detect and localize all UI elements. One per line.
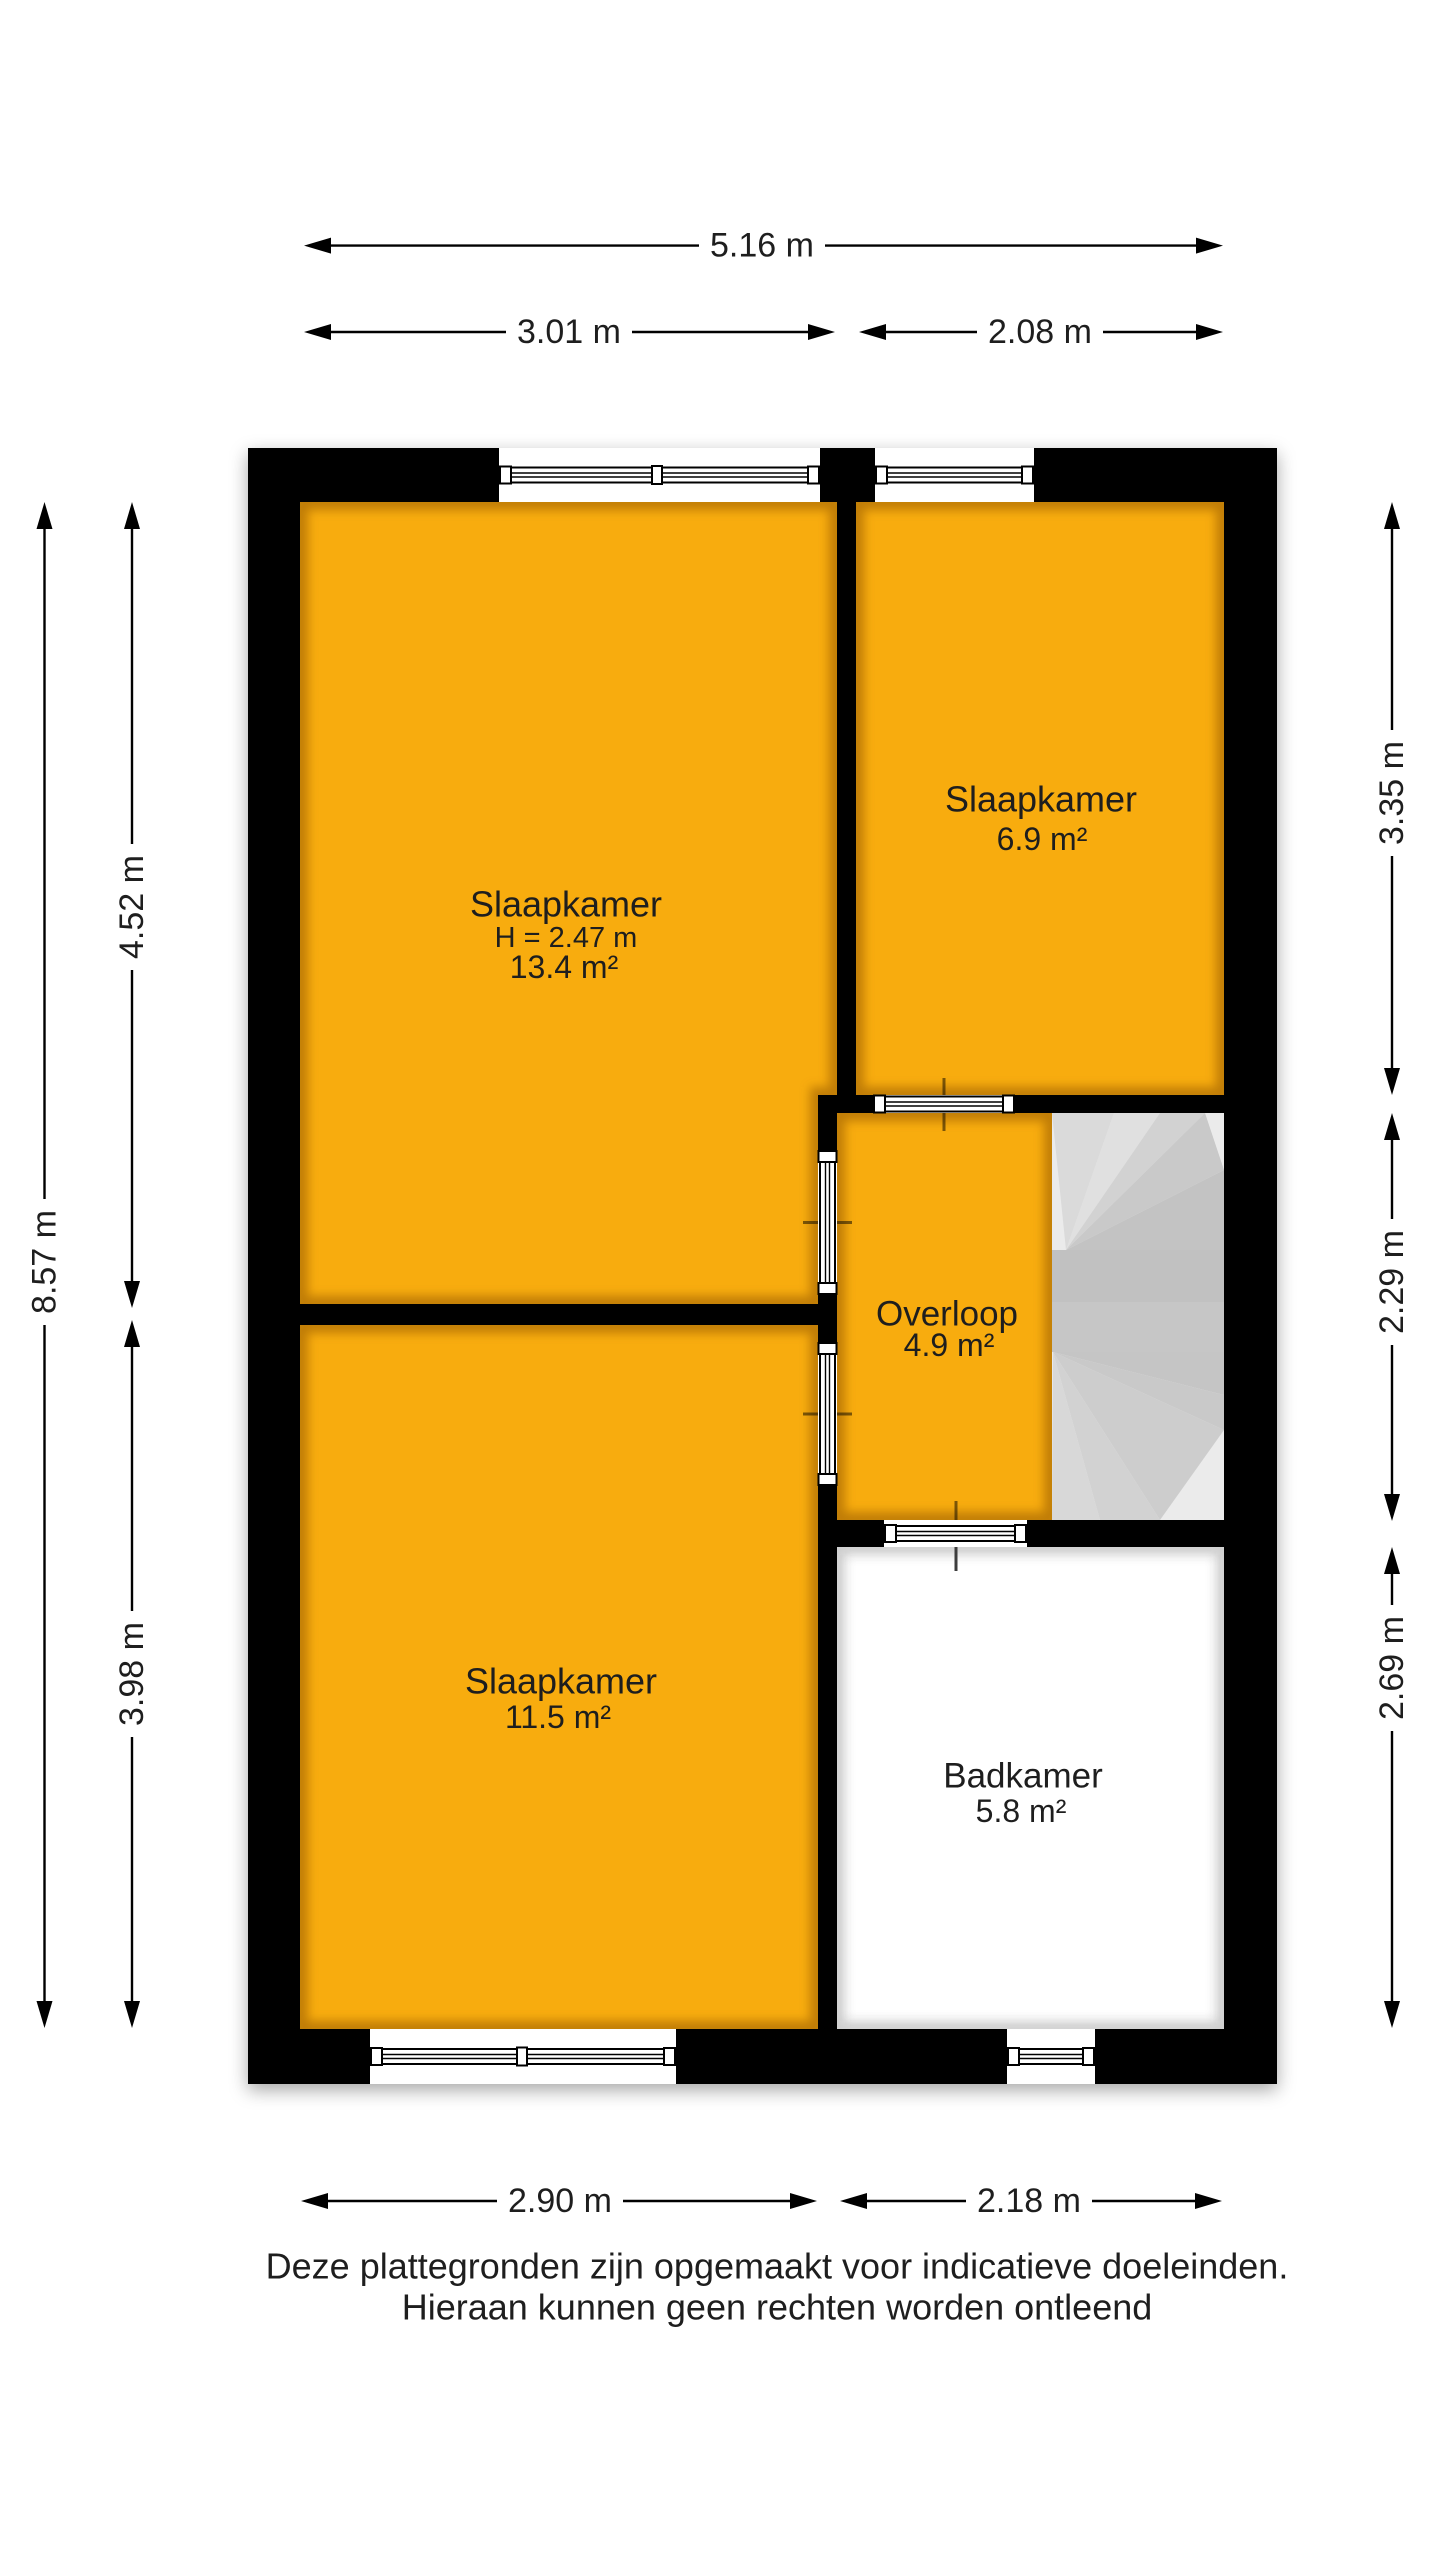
svg-text:Deze plattegronden zijn opgema: Deze plattegronden zijn opgemaakt voor i… (266, 2246, 1289, 2287)
svg-text:11.5 m²: 11.5 m² (505, 1699, 611, 1735)
svg-text:13.4 m²: 13.4 m² (510, 949, 619, 985)
svg-text:2.18 m: 2.18 m (977, 2182, 1081, 2220)
svg-text:Badkamer: Badkamer (943, 1757, 1103, 1796)
svg-text:3.35 m: 3.35 m (1373, 741, 1411, 845)
svg-text:3.98 m: 3.98 m (113, 1622, 151, 1726)
svg-text:4.52 m: 4.52 m (113, 855, 151, 959)
svg-text:3.01 m: 3.01 m (517, 313, 621, 351)
svg-text:Hieraan kunnen geen rechten wo: Hieraan kunnen geen rechten worden ontle… (402, 2287, 1153, 2328)
svg-text:2.90 m: 2.90 m (508, 2182, 612, 2220)
svg-text:6.9 m²: 6.9 m² (997, 821, 1088, 857)
svg-text:2.08 m: 2.08 m (988, 313, 1092, 351)
svg-text:5.16 m: 5.16 m (710, 227, 814, 265)
svg-text:5.8 m²: 5.8 m² (976, 1793, 1067, 1829)
svg-text:Slaapkamer: Slaapkamer (465, 1661, 657, 1702)
svg-text:2.69 m: 2.69 m (1373, 1616, 1411, 1720)
svg-text:2.29 m: 2.29 m (1373, 1230, 1411, 1334)
svg-text:4.9 m²: 4.9 m² (904, 1327, 995, 1363)
svg-text:8.57 m: 8.57 m (26, 1210, 64, 1314)
svg-text:Slaapkamer: Slaapkamer (470, 884, 662, 925)
svg-text:Slaapkamer: Slaapkamer (945, 779, 1137, 820)
